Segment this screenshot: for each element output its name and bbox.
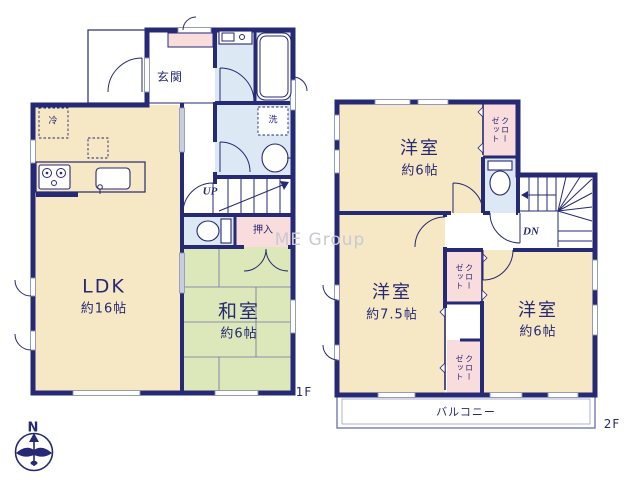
bedroom-west-size: 約7.5帖 — [366, 309, 418, 322]
closet-mid-line2: ゼット — [454, 264, 464, 291]
floor1-label: 1F — [296, 386, 313, 398]
closet-mid-line1: クロー — [464, 264, 474, 291]
washitsu-name: 和室 — [218, 303, 260, 322]
shoe-cabinet — [168, 33, 213, 47]
closet-south-line2: ゼット — [454, 355, 464, 382]
compass-tail — [31, 461, 38, 465]
compass-north-label: N — [28, 422, 39, 435]
watermark: ME Group — [275, 230, 366, 250]
bedroom-north-size: 約6帖 — [401, 165, 438, 178]
bedroom-west-name: 洋室 — [372, 284, 412, 302]
bedroom-east-name: 洋室 — [518, 302, 558, 320]
laundry-mark: 洗 — [268, 117, 277, 126]
room-ldk-floor — [33, 105, 180, 393]
stove-icon — [39, 165, 70, 189]
balcony-label: バルコニー — [436, 407, 496, 418]
room-bedroom-east-floor — [482, 250, 595, 395]
bedroom-east-size: 約6帖 — [519, 326, 556, 339]
stairs-up-label: UP — [203, 187, 218, 198]
floorplan-page: LDK 約16帖 和室 約6帖 玄関 押入 洗 冷 UP 1F 洋室 約6帖 洋… — [0, 0, 640, 480]
closet-north-line2: ゼット — [490, 117, 500, 144]
ldk-name: LDK — [82, 278, 126, 297]
bedroom-north-name: 洋室 — [400, 140, 440, 158]
oshiire-label: 押入 — [253, 226, 273, 236]
porch-outline — [88, 30, 147, 103]
closet-south-line1: クロー — [464, 355, 474, 382]
closet-north-label: クロー ゼット — [490, 117, 509, 144]
compass — [16, 433, 53, 471]
floor2-label: 2F — [604, 418, 621, 430]
vanity-icon — [219, 31, 252, 44]
washitsu-size: 約6帖 — [220, 328, 257, 341]
closet-mid-label: クロー ゼット — [454, 264, 473, 291]
closet-north-line1: クロー — [500, 117, 510, 144]
closet-south-label: クロー ゼット — [454, 355, 473, 382]
ldk-size: 約16帖 — [81, 303, 128, 316]
toilet-icon-2f — [488, 161, 512, 195]
genkan-label: 玄関 — [157, 71, 183, 83]
toilet-icon-1f — [197, 219, 231, 243]
fridge-mark: 冷 — [48, 118, 57, 127]
bathtub-icon — [257, 33, 291, 100]
stairs-dn-label: DN — [523, 227, 539, 238]
stairs-1f-icon — [219, 179, 289, 213]
